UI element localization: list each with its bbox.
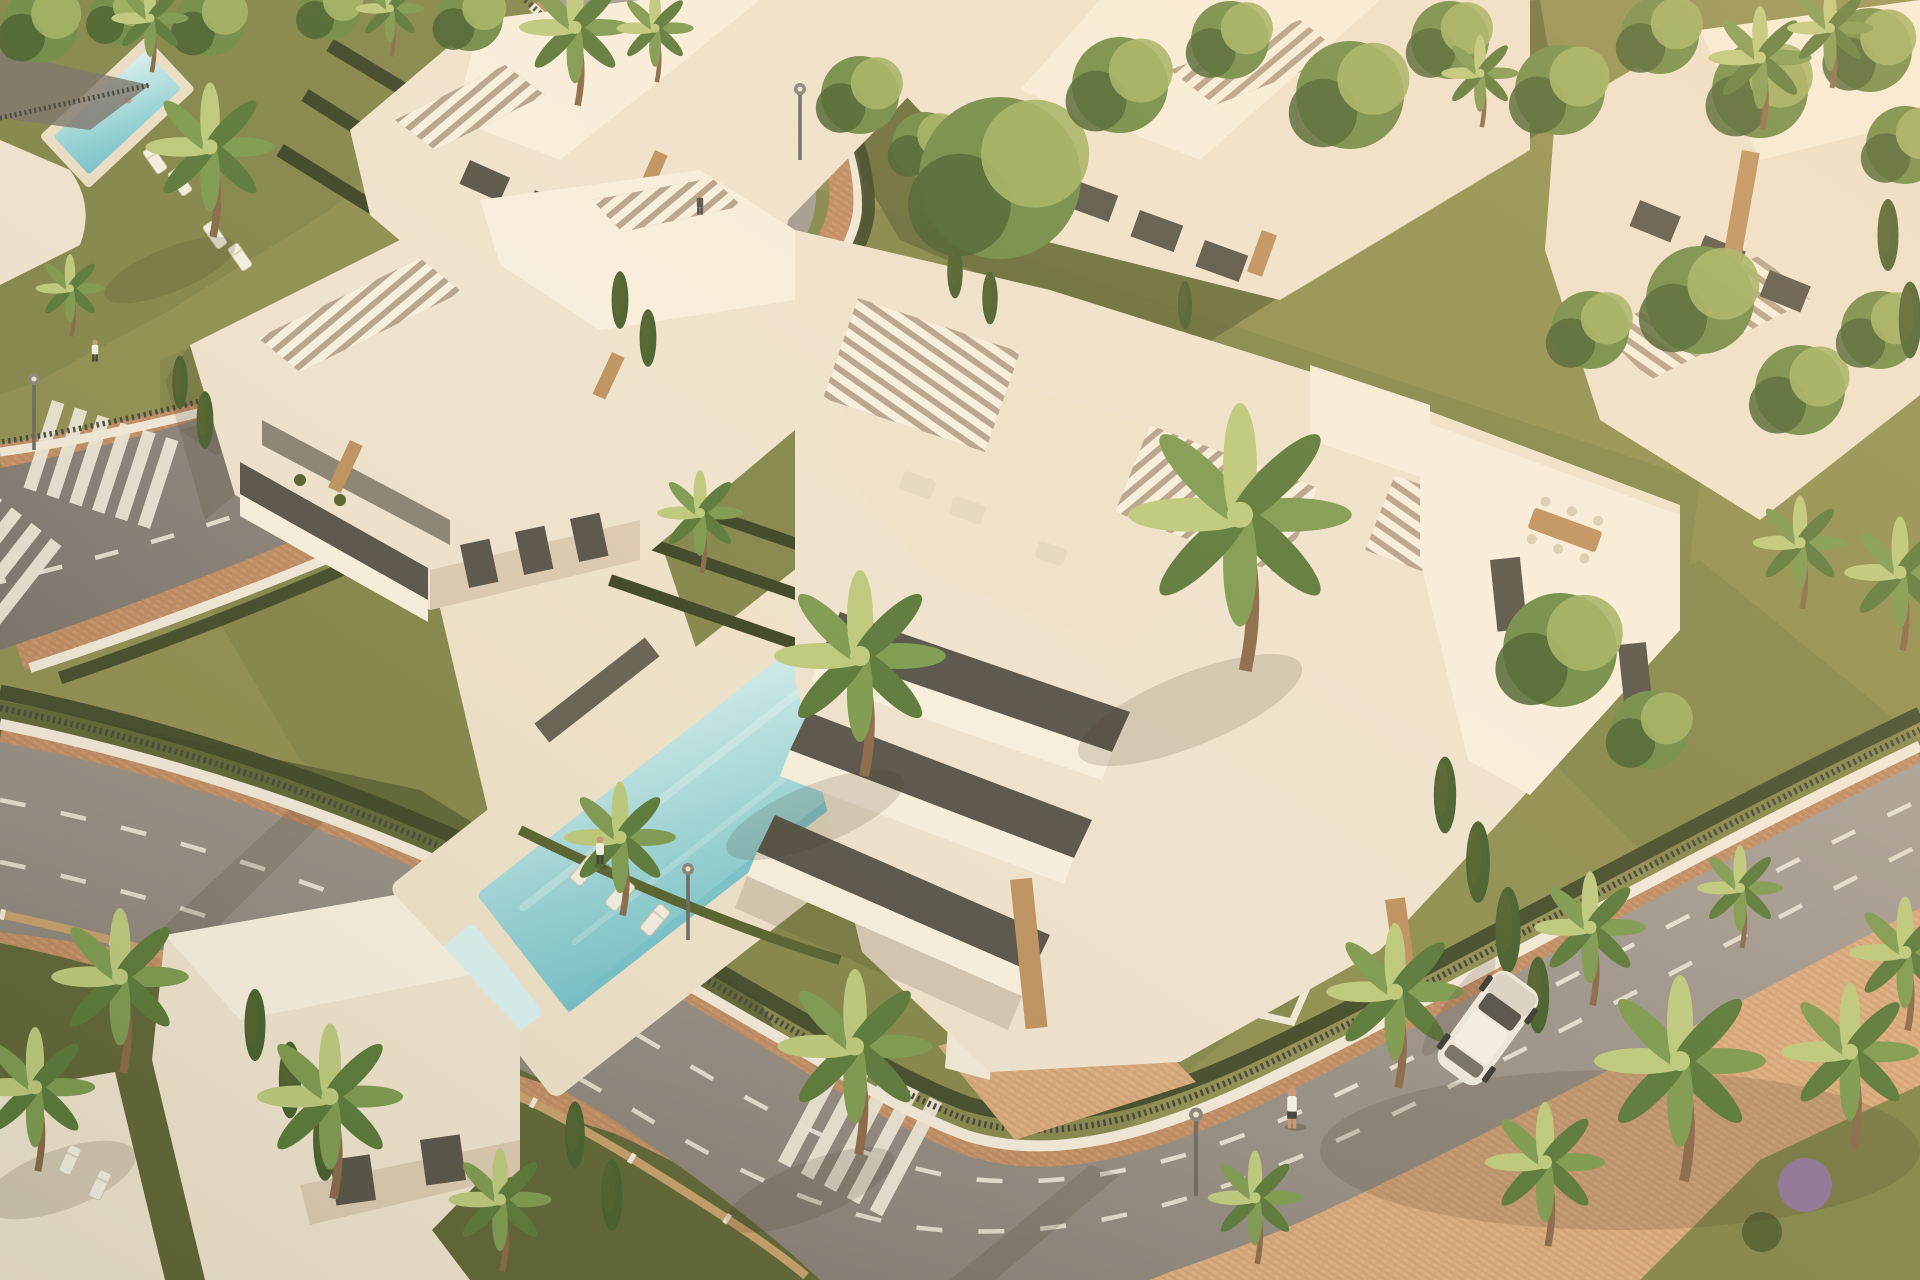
warm-light-overlay [0, 0, 1920, 1280]
aerial-render [0, 0, 1920, 1280]
aerial-render-canvas [0, 0, 1920, 1280]
